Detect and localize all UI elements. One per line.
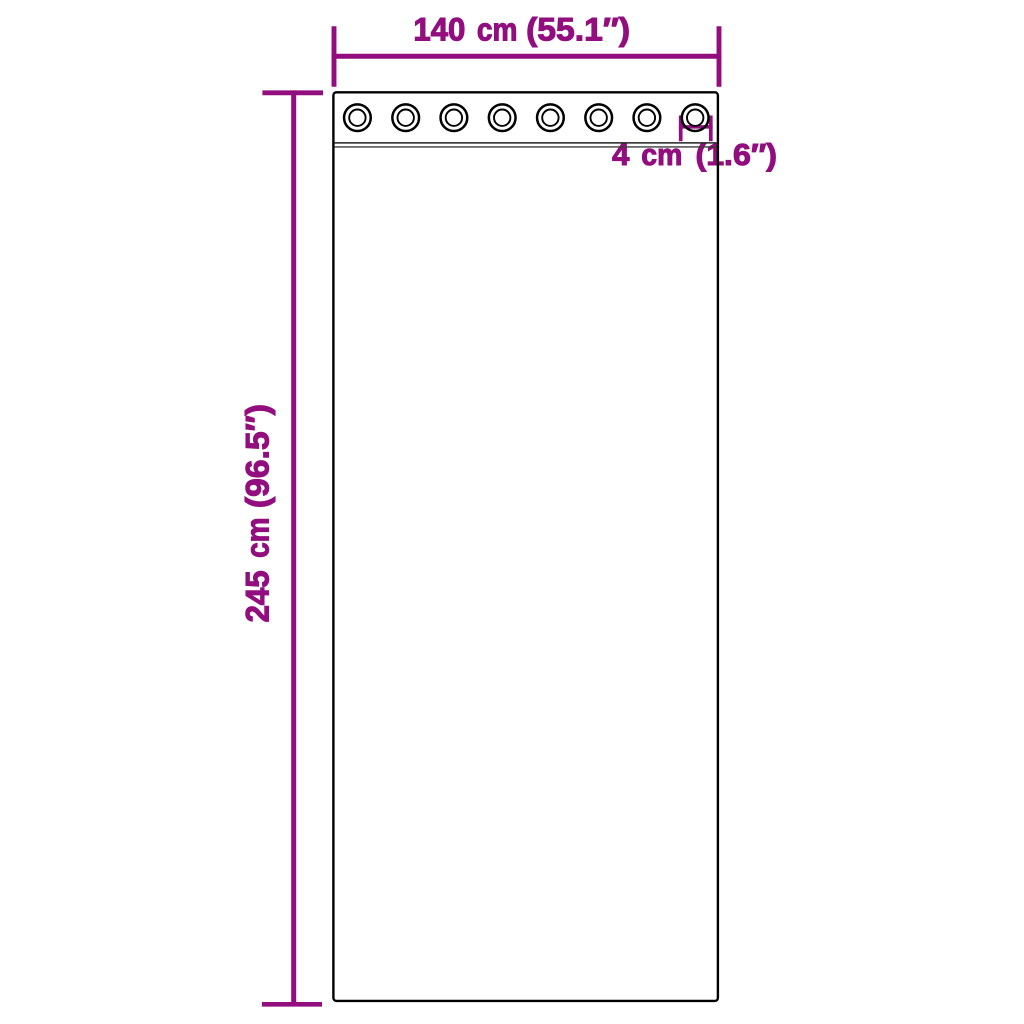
svg-text:(55.1″): (55.1″) (526, 11, 630, 47)
svg-text:245: 245 (239, 570, 275, 622)
svg-text:(96.5″): (96.5″) (239, 404, 275, 508)
svg-text:140: 140 (413, 11, 465, 47)
svg-text:cm: cm (477, 11, 518, 47)
svg-text:cm: cm (239, 517, 275, 558)
